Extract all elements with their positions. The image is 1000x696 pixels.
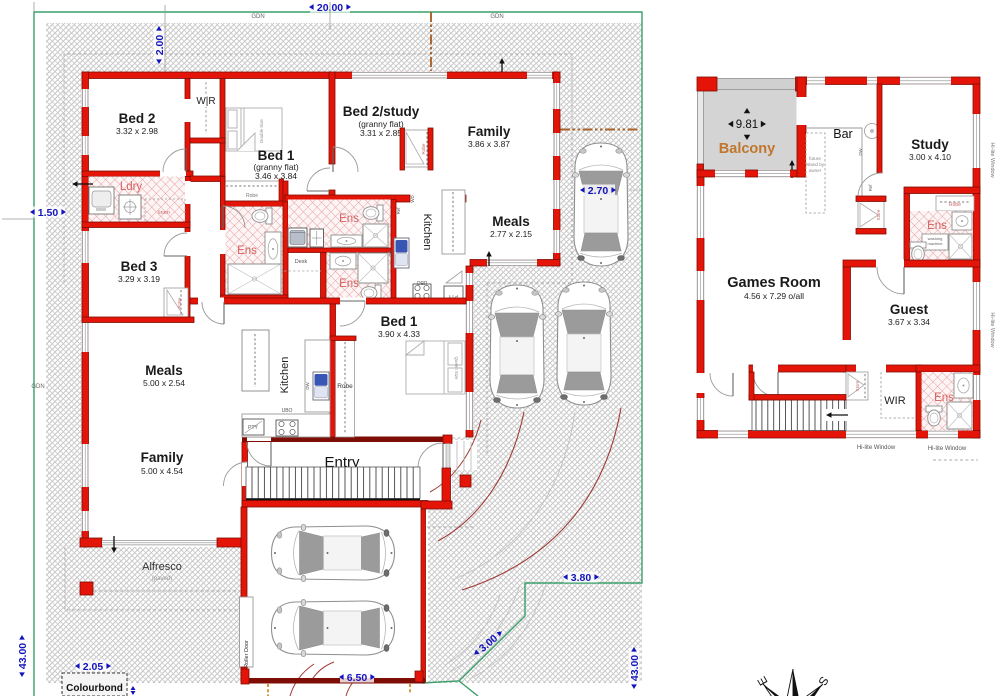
- svg-text:Ref: Ref: [868, 184, 873, 192]
- svg-text:DW: DW: [305, 381, 310, 389]
- svg-text:3.80: 3.80: [571, 572, 592, 584]
- svg-text:Balcony: Balcony: [719, 141, 775, 157]
- svg-text:Bed 2: Bed 2: [119, 111, 156, 126]
- svg-text:3.86 x 3.87: 3.86 x 3.87: [468, 139, 510, 149]
- svg-text:island by: island by: [806, 162, 825, 167]
- svg-text:Hi-lite Window: Hi-lite Window: [989, 142, 995, 177]
- svg-text:Study: Study: [911, 137, 949, 152]
- svg-text:3.29 x 3.19: 3.29 x 3.19: [118, 274, 160, 284]
- svg-text:Store: Store: [855, 380, 860, 391]
- svg-text:Bed 3: Bed 3: [121, 259, 158, 274]
- svg-text:machine: machine: [927, 241, 943, 246]
- svg-text:GDN: GDN: [31, 384, 44, 390]
- svg-text:(paved): (paved): [152, 576, 172, 582]
- svg-text:2.77 x 2.15: 2.77 x 2.15: [490, 229, 532, 239]
- svg-text:UBO: UBO: [282, 408, 293, 414]
- svg-text:Robe: Robe: [949, 202, 961, 208]
- svg-text:Family: Family: [468, 124, 511, 139]
- svg-text:GDN: GDN: [490, 14, 503, 20]
- svg-text:Roller Door: Roller Door: [244, 640, 250, 668]
- svg-text:WIR: WIR: [884, 395, 905, 407]
- svg-text:Robe: Robe: [177, 297, 182, 308]
- svg-text:Hi-lite Window: Hi-lite Window: [928, 446, 967, 452]
- svg-text:linen: linen: [158, 210, 170, 216]
- svg-text:3.90 x 4.33: 3.90 x 4.33: [378, 329, 420, 339]
- svg-text:1.50: 1.50: [38, 207, 59, 219]
- svg-text:Robe: Robe: [421, 143, 426, 154]
- svg-text:Store: Store: [876, 209, 881, 220]
- svg-text:UBO: UBO: [416, 279, 427, 285]
- svg-text:E: E: [754, 674, 770, 688]
- svg-text:Kitchen: Kitchen: [279, 357, 291, 394]
- svg-text:Ref: Ref: [396, 207, 401, 215]
- svg-text:Kitchen: Kitchen: [421, 214, 433, 251]
- svg-text:Games Room: Games Room: [727, 275, 820, 291]
- svg-text:PTY: PTY: [248, 425, 258, 431]
- svg-text:4.56 x 7.29 o/all: 4.56 x 7.29 o/all: [744, 291, 804, 301]
- svg-text:owner: owner: [809, 168, 822, 173]
- svg-text:Guest: Guest: [890, 302, 929, 317]
- svg-text:future: future: [809, 156, 821, 161]
- svg-text:DW: DW: [858, 147, 863, 155]
- svg-text:Meals: Meals: [492, 214, 530, 229]
- svg-text:3.00 x 4.10: 3.00 x 4.10: [909, 152, 951, 162]
- svg-text:WD: WD: [410, 195, 415, 202]
- svg-text:Double Size: Double Size: [259, 119, 264, 143]
- svg-text:2.00: 2.00: [154, 35, 166, 56]
- svg-text:43.00: 43.00: [17, 643, 29, 669]
- svg-text:Ens: Ens: [237, 245, 257, 257]
- svg-text:5.00 x 4.54: 5.00 x 4.54: [141, 466, 183, 476]
- svg-text:Bed 2/study: Bed 2/study: [343, 104, 420, 119]
- svg-text:3.67 x 3.34: 3.67 x 3.34: [888, 317, 930, 327]
- svg-text:Robe: Robe: [246, 193, 258, 199]
- svg-text:3.46 x 3.84: 3.46 x 3.84: [255, 171, 297, 181]
- svg-text:2.70: 2.70: [588, 185, 609, 197]
- svg-text:Family: Family: [141, 450, 184, 465]
- svg-text:Ens: Ens: [927, 220, 947, 232]
- svg-text:3.31 x 2.85: 3.31 x 2.85: [360, 128, 402, 138]
- svg-text:Hi-lite Window: Hi-lite Window: [857, 445, 896, 451]
- svg-text:GDN: GDN: [251, 14, 264, 20]
- svg-text:Hi-lite Window: Hi-lite Window: [989, 312, 995, 347]
- svg-text:43.00: 43.00: [629, 655, 641, 681]
- svg-text:Alfresco: Alfresco: [142, 561, 182, 573]
- svg-text:Bed 1: Bed 1: [381, 314, 418, 329]
- svg-text:W|R: W|R: [196, 96, 215, 107]
- svg-text:2.05: 2.05: [83, 661, 104, 673]
- svg-text:5.00 x 2.54: 5.00 x 2.54: [143, 378, 185, 388]
- svg-text:Queen Size: Queen Size: [454, 357, 459, 381]
- svg-text:Meals: Meals: [145, 363, 183, 378]
- svg-text:6.50: 6.50: [347, 672, 368, 684]
- svg-text:Bed 1: Bed 1: [258, 148, 295, 163]
- svg-text:Ldry: Ldry: [120, 181, 143, 193]
- svg-text:9.81: 9.81: [736, 119, 758, 131]
- svg-text:Ens: Ens: [339, 213, 359, 225]
- svg-text:Bar: Bar: [833, 127, 852, 141]
- svg-text:Desk: Desk: [295, 259, 308, 265]
- svg-text:S: S: [815, 674, 831, 688]
- svg-text:DW: DW: [388, 248, 393, 256]
- svg-text:3.32 x 2.98: 3.32 x 2.98: [116, 126, 158, 136]
- svg-text:Colourbond: Colourbond: [66, 683, 123, 694]
- svg-text:Robe: Robe: [337, 383, 353, 390]
- svg-text:Ens: Ens: [339, 278, 359, 290]
